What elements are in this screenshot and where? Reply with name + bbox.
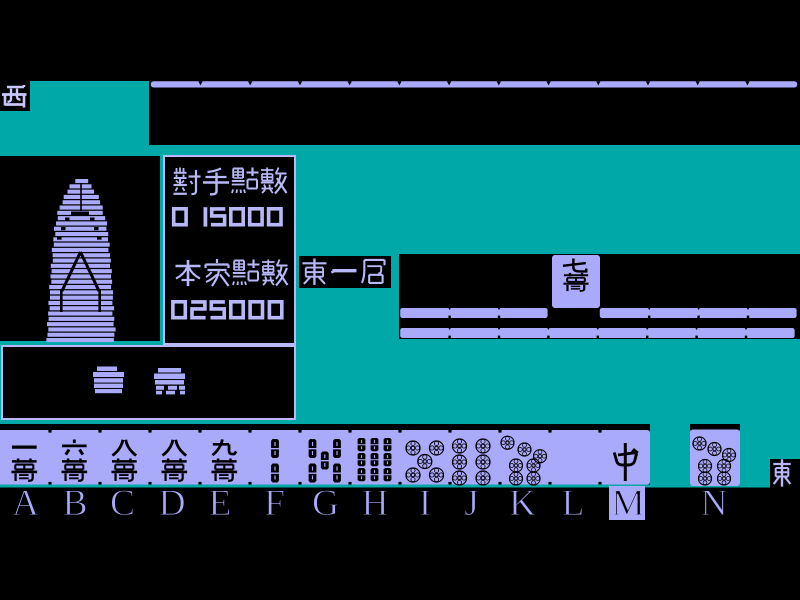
svg-text:A: A — [12, 483, 39, 524]
svg-text:C: C — [110, 483, 135, 524]
svg-text:G: G — [312, 483, 339, 524]
svg-text:B: B — [62, 483, 87, 524]
svg-text:D: D — [158, 483, 185, 524]
svg-text:M: M — [611, 483, 644, 524]
svg-text:L: L — [562, 483, 585, 524]
svg-text:F: F — [264, 483, 285, 524]
svg-text:J: J — [464, 483, 479, 524]
svg-text:N: N — [700, 483, 727, 524]
svg-text:I: I — [419, 483, 432, 524]
svg-text:K: K — [509, 483, 536, 524]
svg-text:E: E — [209, 483, 232, 524]
svg-text:H: H — [361, 483, 388, 524]
